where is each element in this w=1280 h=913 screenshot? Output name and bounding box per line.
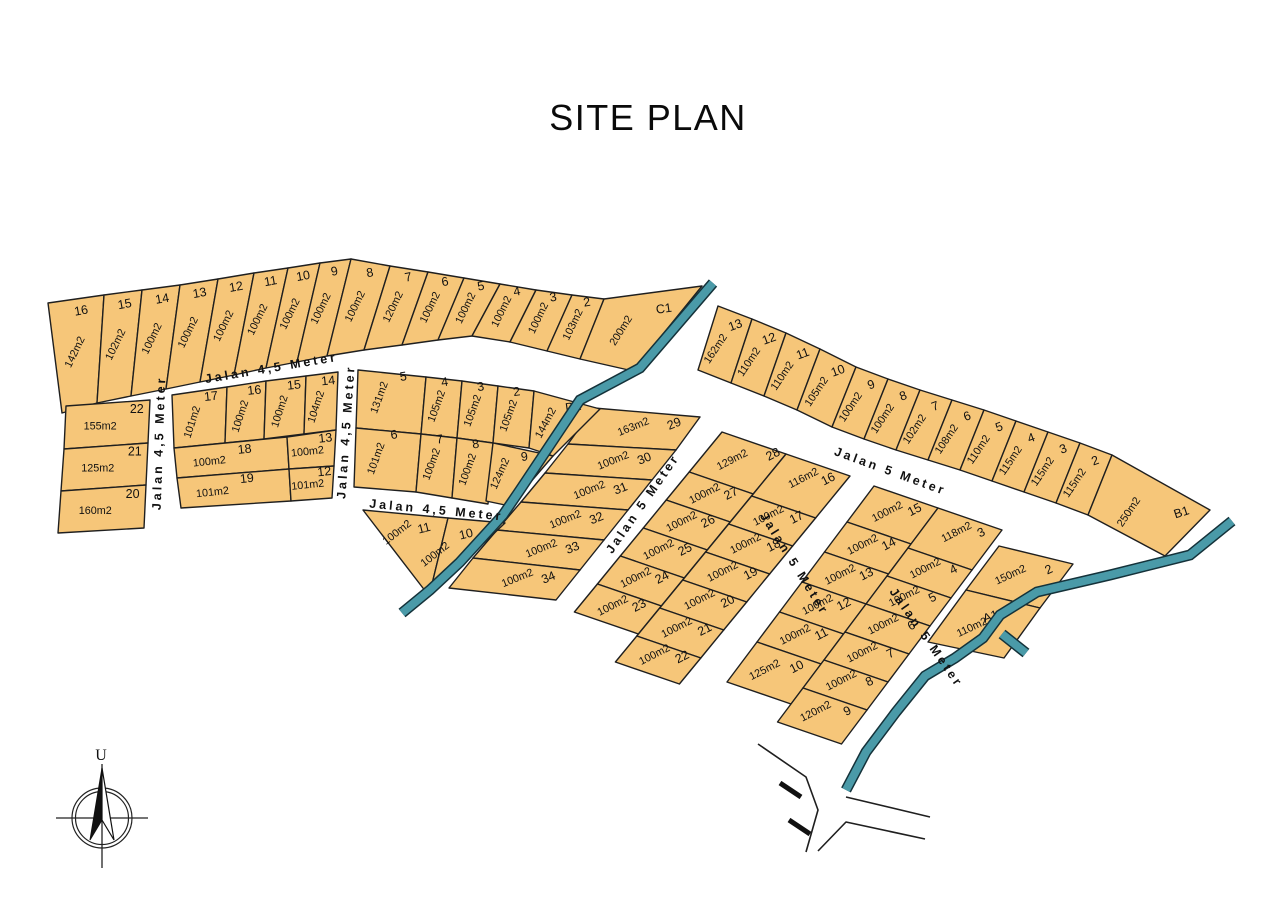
road-fork-tick — [780, 783, 801, 797]
lot-number: 5 — [399, 369, 408, 384]
road-fork-tick — [789, 820, 810, 834]
lot-number: 14 — [154, 291, 170, 307]
lot-number: 4 — [512, 284, 521, 299]
lot-number: 17 — [203, 389, 218, 404]
lot-strip_right-B1: B1250m2 — [1088, 455, 1210, 556]
page-title: SITE PLAN — [549, 97, 747, 138]
lot-west-20: 20160m2 — [58, 485, 146, 533]
lot-shape — [1088, 455, 1210, 556]
lot-midwest-16: 16100m2 — [225, 381, 266, 443]
lot-west-21: 21125m2 — [61, 443, 148, 491]
lot-number: 19 — [239, 471, 254, 486]
lot-shape — [356, 370, 426, 434]
lot-d1-3: 3105m2 — [457, 379, 498, 443]
lot-number: 3 — [476, 379, 485, 394]
lot-number: 10 — [295, 268, 311, 284]
lot-number: 13 — [318, 430, 333, 445]
lot-number: 15 — [117, 296, 133, 312]
lot-d1-7: 7100m2 — [416, 432, 457, 498]
lot-midwest-15: 15100m2 — [264, 376, 306, 439]
lot-number: 20 — [126, 487, 140, 501]
compass-needle-light — [102, 768, 114, 840]
lot-number: 18 — [237, 441, 252, 456]
lot-west-22: 22155m2 — [64, 400, 150, 449]
lot-d1-2: 2105m2 — [493, 384, 534, 448]
lot-d1-6: 6101m2 — [354, 427, 421, 492]
road-fork-outline — [846, 797, 930, 817]
lot-number: C1 — [655, 301, 673, 317]
lot-number: 16 — [247, 383, 262, 398]
lot-midwest-17: 17101m2 — [172, 387, 227, 448]
road-fork — [758, 744, 930, 852]
lot-number: 11 — [263, 273, 278, 289]
road-label-jalan45-west: Jalan 4,5 Meter — [150, 375, 169, 510]
lot-number: 2 — [512, 384, 521, 399]
road-fork-outline — [818, 822, 925, 851]
lot-number: 15 — [286, 377, 301, 392]
lot-number: 3 — [548, 290, 557, 305]
lot-number: 16 — [73, 302, 89, 318]
lot-midwest-14: 14104m2 — [304, 372, 338, 434]
lot-size: 125m2 — [81, 463, 114, 475]
site-plan-canvas: SITE PLAN 16142m215102m214100m213100m212… — [0, 0, 1280, 913]
lot-d1-5: 5131m2 — [356, 369, 426, 434]
lot-number: 14 — [321, 373, 336, 388]
compass-rose: U — [56, 747, 148, 868]
lot-number: 12 — [317, 464, 332, 479]
lot-size: 155m2 — [84, 420, 117, 432]
lot-strip_top-16: 16142m2 — [48, 295, 104, 413]
lot-size: 160m2 — [79, 505, 112, 517]
road-fork-outline — [758, 744, 818, 852]
lot-d1-4: 4105m2 — [421, 375, 462, 438]
compass-needle-dark — [90, 768, 102, 840]
lot-number: 4 — [440, 375, 449, 390]
lots-layer: 16142m215102m214100m213100m212100m211100… — [48, 259, 1210, 744]
lot-number: 13 — [192, 285, 208, 301]
lot-number: 12 — [228, 279, 244, 295]
compass-north-label: U — [95, 747, 107, 764]
lot-number: 21 — [128, 445, 142, 459]
lot-midwest-12: 12101m2 — [289, 464, 334, 501]
lot-number: 22 — [130, 402, 144, 416]
lot-shape — [354, 428, 421, 492]
site-plan-page: SITE PLAN 16142m215102m214100m213100m212… — [0, 0, 1280, 913]
